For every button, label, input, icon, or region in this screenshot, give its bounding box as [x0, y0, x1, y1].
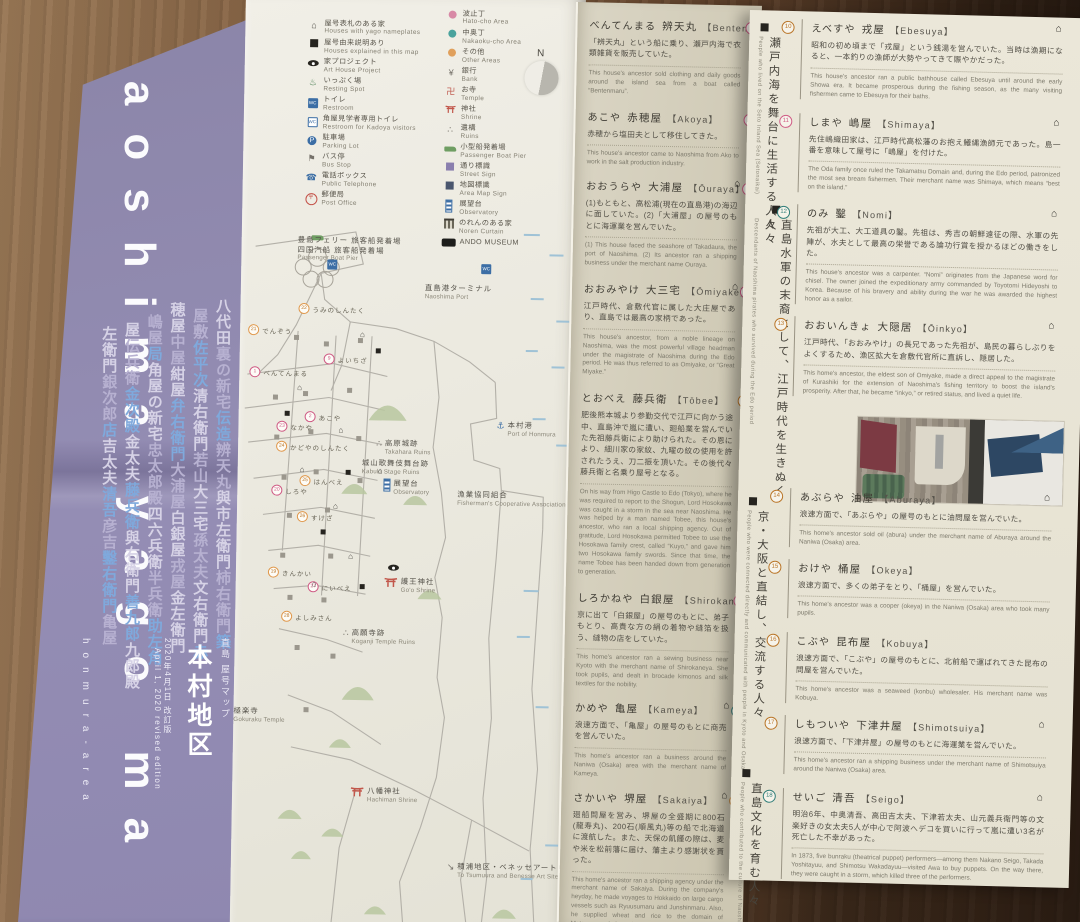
map-spot: 24かどやのしんたく: [276, 441, 350, 453]
map-label-en: Koganji Temple Ruins: [351, 638, 415, 647]
yago-name: 藤兵衛: [123, 482, 140, 530]
entry-text-jp: 「辨天丸」という船に乗り、瀬戸内海で衣類雑貨を販売していた。: [589, 36, 741, 62]
entry-kanji: 油屋: [851, 492, 875, 505]
map-label-port-honmura: ⚓本村港Port of Honmura: [496, 420, 556, 438]
yago-name-column: 左衛門銀次郎店吉太夫清吾彦吉鑿右衛門亀屋: [101, 326, 117, 768]
entry-kanji: 堺屋: [624, 793, 648, 805]
yago-name: 文右衛門: [191, 580, 208, 644]
cover-panel: naoshima yago ma honmura-area 八代田裏の新宅伝造辨…: [18, 10, 258, 922]
entry-kana: しもついや: [794, 719, 850, 731]
entry-romaji: 【Akoya】: [667, 114, 719, 125]
yago-name: 局: [146, 346, 163, 362]
map-label-jp: 極楽寺: [233, 706, 285, 717]
section-headings: People who lived on the Seto Inland Sea …: [750, 10, 1080, 18]
map-label-text: 護王神社Go'o Shrine: [401, 577, 436, 595]
yago-name: 佐平次: [191, 340, 208, 388]
map-spot: 22うみのしんたく: [298, 303, 365, 315]
entry-text-en: This home's ancestor was a seaweed (konb…: [795, 685, 1047, 709]
entry-kanji: 藤兵衛: [632, 394, 667, 407]
entry-kanji: 大隠居: [877, 321, 912, 334]
map-label-en: Kabuki Stage Ruins: [362, 468, 429, 477]
entry-text-jp: 浪速方面で、多くの弟子をとり、「桶屋」を営んでいた。: [798, 579, 1050, 597]
yago-name: 嶋屋: [146, 314, 163, 346]
entry-romaji: 【Sakaiya】: [652, 794, 713, 805]
map-spot: 20しろや: [271, 485, 308, 497]
cover-dates: 2020年4月1日 改訂版 April 1, 2020 revised edit…: [153, 638, 173, 908]
map-label-text: 漁業協同組合Fisherman's Cooperative Associatio…: [457, 490, 566, 509]
spot-label: あこや: [319, 412, 342, 422]
yago-name: 半兵衛: [146, 570, 163, 618]
yago-name: 忠太郎殿: [146, 442, 163, 506]
spot-label: うみのしんたく: [312, 304, 365, 315]
entry-number-badge: 17: [764, 716, 777, 729]
entry-divider: [589, 64, 741, 68]
spot-number-badge: 9: [324, 353, 335, 364]
entry-divider: [583, 328, 735, 332]
wood-table-background: naoshima yago ma honmura-area 八代田裏の新宅伝造辨…: [0, 0, 1080, 922]
entry-romaji: 【Aburaya】: [879, 494, 942, 506]
entry-oinkyo: おおいんきょ大隠居【Ōinkyo】⌂13江戸時代、「おおみやけ」の長兄であった先…: [793, 316, 1057, 402]
yago-name: 穂屋: [169, 302, 186, 334]
yago-name: 八代田: [214, 298, 231, 346]
entry-kana: おけや: [798, 563, 832, 575]
spot-number-badge: 23: [276, 421, 287, 432]
yago-name: 紺屋: [169, 366, 186, 398]
yago-name: 白銀屋: [169, 510, 186, 558]
house-icon: ⌂: [1044, 492, 1050, 503]
explained-icon: [285, 411, 290, 416]
spot-number-badge: 22: [298, 303, 309, 314]
entry-text-en: This home's ancestor sold oil (abura) un…: [799, 529, 1051, 553]
map-label-pier: 豊島フェリー 旅客船発着場四国汽船 旅客船発着場Passenger Boat P…: [297, 235, 401, 264]
yago-name: 伝兵衛: [123, 338, 140, 386]
map-label-observatory: 展望台Observatory: [383, 478, 429, 496]
spot-number-badge: 21: [248, 324, 259, 335]
ruins-icon: ∴: [376, 438, 382, 449]
entry-shirokaneya: しろかねや白銀屋【Shirokaneya】6京に出て「白銀屋」の屋号のもとに、弟…: [576, 589, 730, 692]
entry-number-badge: 10: [781, 21, 794, 34]
entry-kana: おおうらや: [586, 181, 642, 193]
entry-romaji: 【Shimaya】: [877, 119, 941, 131]
entry-kanji: 辨天丸: [662, 21, 697, 34]
entry-text-jp: 肥後熊本城より参勤交代で江戸に向かう途中、直島沖で嵐に遭い、廻船業を営んでいた先…: [580, 410, 733, 482]
map-label-en: Hachiman Shrine: [367, 796, 418, 805]
entry-kanji: 大浦屋: [648, 181, 683, 194]
entry-name: のみ鑿【Nomi】: [807, 205, 1059, 227]
yago-name: 四六兵衛: [146, 506, 163, 570]
house-icon: ⌂: [1051, 209, 1057, 220]
entry-text-jp: 先住嶋織田家は、江戸時代高松藩のお抱え鱶縄漁師元であった。島一番を意味して屋号に…: [808, 133, 1060, 162]
map-label-text: 展望台Observatory: [393, 479, 429, 497]
house-icon: ⌂: [734, 178, 740, 189]
entry-kanji: 鑿: [835, 208, 847, 220]
arrow-icon: ↘: [447, 862, 455, 873]
entry-text-en: (1) This house faced the seashore of Tak…: [584, 241, 737, 271]
section-heading-jp: 直島文化を育む人々: [744, 782, 764, 922]
entries-column-middle: べんてんまる辨天丸【Bentenmaru】1「辨天丸」という船に乗り、瀬戸内海で…: [568, 2, 742, 922]
yago-name: 銀次郎: [100, 374, 117, 422]
entry-romaji: 【Tōbee】: [672, 395, 724, 406]
entry-number-badge: 11: [779, 114, 792, 127]
spot-label: でんぞう: [262, 325, 292, 336]
entry-romaji: 【Seigo】: [861, 794, 911, 805]
entry-divider: [572, 871, 724, 875]
observatory-icon: [383, 478, 390, 491]
entry-kana: えべすや: [811, 24, 855, 36]
yago-name: 孫太夫: [191, 532, 208, 580]
map-spot: 23なかや: [276, 421, 313, 433]
map-label-text: 八幡神社Hachiman Shrine: [367, 786, 418, 804]
yago-name: 大浦屋: [169, 462, 186, 510]
map-label-jp: 展望台: [393, 479, 429, 489]
entry-shimaya: しまや嶋屋【Shimaya】⌂11先住嶋織田家は、江戸時代高松藩のお抱え鱶縄漁師…: [798, 113, 1062, 199]
map-spot: 9よいちざ: [324, 353, 368, 365]
spot-label: はんべえ: [313, 476, 343, 487]
entry-text-jp: 廻船問屋を営み、堺屋の全盛期に800石(龍寿丸)、200石(順風丸)等の船で北海…: [572, 809, 725, 869]
entry-name: おおみやけ大三宅【Ōmiyake】: [584, 280, 736, 299]
entry-romaji: 【Ōinkyo】: [917, 323, 973, 334]
art-house-eye-icon: [388, 565, 399, 571]
cover-subtitle-latin: honmura-area: [80, 638, 91, 922]
spot-number-badge: 1: [249, 366, 260, 377]
entry-romaji: 【Kameya】: [643, 705, 704, 716]
map-label-en: Takahara Ruins: [385, 448, 431, 457]
section-marker-icon: [742, 769, 750, 777]
entry-kobuya: こぶや昆布屋【Kobuya】16浪速方面で、「こぶや」の屋号のもとに、北前船で運…: [785, 632, 1049, 709]
yago-name: 吉太夫: [100, 438, 117, 486]
spot-number-badge: 24: [276, 441, 287, 452]
yago-name: 角屋の新宅: [146, 362, 163, 442]
entry-seigo: せいご清吾【Seigo】⌂18明治6年、中奥清吾、高田吉太夫、下津若太夫、山元義…: [781, 788, 1045, 885]
entry-text-jp: 明治6年、中奥清吾、高田吉太夫、下津若太夫、山元義兵衛門等の文楽好きの女太夫5人…: [792, 808, 1045, 848]
entry-kanji: 嶋屋: [849, 117, 873, 130]
entry-divider: [576, 648, 728, 652]
yago-name: 彦吉: [100, 518, 117, 550]
area-title: 本村地区: [180, 644, 216, 908]
map-label-gokuraku: 極楽寺Gokuraku Temple: [233, 706, 285, 724]
yago-name-column: 屋伝兵衛金次殿金太夫藤兵衛與右衛門善九郎九郎殿: [123, 322, 139, 768]
entry-aburaya: あぶらや油屋【Aburaya】⌂14浪速方面で、「あぶらや」の屋号のもとに油問屋…: [789, 488, 1052, 554]
yago-name: 辨天丸: [214, 442, 231, 490]
map-label-port-terminal: 直島港ターミナルNaoshima Port: [425, 283, 492, 302]
entry-kana: せいご: [793, 792, 827, 804]
map-label-text: 高願寺跡Koganji Temple Ruins: [351, 628, 415, 646]
entry-text-en: On his way from Higo Castle to Edo (Toky…: [578, 488, 732, 581]
entry-ouraya: おおうらや大浦屋【Ōuraya】⌂3(1)もともと、高松浦(現在の直島港)の海辺…: [584, 177, 738, 271]
section-heading-culture: People who contributed to the culture of…: [735, 782, 779, 922]
entry-text-en: This home's ancestor ran a business arou…: [574, 752, 727, 782]
house-icon: ⌂: [721, 790, 727, 801]
entry-sakaiya: さかいや堺屋【Sakaiya】⌂8廻船問屋を営み、堺屋の全盛期に800石(龍寿丸…: [570, 789, 725, 922]
map-label-en: Observatory: [393, 488, 429, 496]
entry-name: しまや嶋屋【Shimaya】: [809, 113, 1061, 135]
entry-name: かめや亀屋【Kameya】: [575, 699, 727, 718]
map-label-text: 極楽寺Gokuraku Temple: [233, 706, 285, 724]
entry-name: とおべえ藤兵衛【Tōbee】: [582, 390, 734, 409]
entry-kana: しろかねや: [577, 593, 633, 605]
yago-name: 戎屋: [169, 558, 186, 590]
map-label-jp: 八幡神社: [367, 786, 418, 797]
entry-kana: あこや: [587, 112, 621, 124]
entry-romaji: 【Okeya】: [866, 565, 919, 576]
entry-text-jp: (1)もともと、高松浦(現在の直島港)の海辺に面していた。(2)「大浦屋」の屋号…: [585, 197, 738, 234]
house-icon: ⌂: [723, 700, 729, 711]
spot-number-badge: 20: [271, 485, 282, 496]
torii-icon: [384, 576, 398, 587]
house-icon: ⌂: [1053, 117, 1059, 128]
section-marker-icon: [749, 497, 757, 505]
entry-text-jp: 浪速方面で、「下津井屋」の屋号のもとに海運業を営んでいた。: [794, 735, 1046, 753]
yago-name: 金次殿: [123, 386, 140, 434]
map-label-en: Naoshima Port: [425, 293, 492, 302]
entry-text-jp: 先祖が大工、大工道具の鑿。先祖は、秀吉の朝鮮遠征の際、水軍の先陣が、水夫として最…: [806, 225, 1059, 265]
spot-label: きんかい: [282, 567, 312, 578]
entry-kanji: 亀屋: [615, 703, 639, 715]
entry-text-en: This home's ancestor was a cooper (okeya…: [797, 601, 1049, 625]
map-series-title: 直島 屋号マップ: [220, 638, 230, 720]
yago-name: 善九郎: [123, 594, 140, 642]
entry-omiyake: おおみやけ大三宅【Ōmiyake】⌂4江戸時代、倉敷代官に属した大庄屋であり、直…: [582, 280, 736, 381]
entry-romaji: 【Ebesuya】: [890, 25, 954, 37]
entry-number-badge: 14: [770, 489, 783, 502]
entry-name: おけや桶屋【Okeya】: [798, 559, 1050, 581]
entry-kana: しまや: [809, 117, 843, 129]
entry-text-en: This home's ancestor ran a sewing busine…: [576, 653, 729, 692]
entries-panel-right: People who lived on the Seto Inland Sea …: [729, 10, 1080, 888]
yago-name: 亀屋: [100, 614, 117, 646]
yago-name: 金太夫: [123, 434, 140, 482]
spot-label: かどやのしんたく: [290, 441, 350, 452]
entry-divider: [587, 144, 739, 148]
spot-label: よしみさん: [295, 611, 333, 622]
revision-date-jp: 2020年4月1日 改訂版: [162, 638, 173, 908]
spot-label: にいべえ: [322, 582, 352, 593]
ruins-icon: ∴: [343, 628, 349, 639]
map-label-text: 高原城跡Takahara Ruins: [385, 438, 431, 456]
entry-name: おおいんきょ大隠居【Ōinkyo】: [804, 317, 1056, 339]
entry-kanji: 下津井屋: [856, 720, 903, 733]
house-icon: ⌂: [1055, 23, 1061, 34]
entry-nomi: のみ鑿【Nomi】⌂12先祖が大工、大工道具の鑿。先祖は、秀吉の朝鮮遠征の際、水…: [795, 204, 1059, 310]
entry-kana: とおべえ: [582, 394, 627, 406]
entry-shimotsuiya: しもついや下津井屋【Shimotsuiya】⌂17浪速方面で、「下津井屋」の屋号…: [783, 715, 1046, 781]
section-marker-icon: [760, 23, 768, 31]
map-spot: 28よしみさん: [281, 611, 333, 623]
yago-name: 店: [100, 422, 117, 438]
map-label-hachiman: 八幡神社Hachiman Shrine: [350, 786, 418, 805]
entry-text-en: In 1873, five bunraku (theatrical puppet…: [791, 853, 1044, 886]
entry-romaji: 【Shimotsuiya】: [908, 722, 991, 734]
explained-icon: [321, 529, 326, 534]
map-restroom-icon-2: WC: [481, 264, 491, 274]
map-label-text: 本村港Port of Honmura: [507, 421, 556, 439]
entry-text-en: This house's ancestor came to Naoshima f…: [587, 149, 739, 170]
entry-kana: こぶや: [796, 637, 830, 649]
entry-bentenmaru: べんてんまる辨天丸【Bentenmaru】1「辨天丸」という船に乗り、瀬戸内海で…: [588, 16, 742, 99]
section-heading-en: People who contributed to the culture of…: [735, 782, 745, 922]
entry-kanji: 昆布屋: [836, 637, 871, 650]
yago-name: 裏の新宅: [214, 346, 231, 410]
yago-name: 伝造: [214, 410, 231, 442]
entry-tobee: とおべえ藤兵衛【Tōbee】5肥後熊本城より参勤交代で江戸に向かう途中、直島沖で…: [578, 390, 734, 581]
entry-kanji: 戎屋: [862, 24, 886, 37]
entry-divider: [574, 747, 726, 751]
entry-text-jp: 江戸時代、倉敷代官に属した大庄屋であり、直島では最高の家柄であった。: [583, 300, 735, 326]
entry-kanji: 清吾: [832, 792, 856, 805]
cover-title-jp: 直島 屋号マップ 本村地区: [180, 638, 234, 908]
yago-name: 屋: [123, 322, 140, 338]
entry-text-en: This home's ancestor ran a shipping busi…: [793, 757, 1045, 781]
entry-text-jp: 赤穂から塩田夫として移住してきた。: [587, 128, 739, 143]
yago-name: 與右衛門: [123, 530, 140, 594]
house-icon: ⌂: [378, 466, 383, 475]
map-label-jp: 護王神社: [401, 577, 436, 587]
house-icon: ⌂: [297, 383, 302, 392]
entry-romaji: 【Kobuya】: [876, 639, 934, 650]
house-icon: ⌂: [1038, 719, 1044, 730]
entry-romaji: 【Nomi】: [852, 210, 898, 221]
map-buildings: [267, 335, 365, 714]
house-icon: ⌂: [1037, 792, 1043, 803]
entry-text-jp: 昭和の初め頃まで「戎屋」という銭湯を営んでいた。当時は漁期になると、一本釣りの漁…: [811, 40, 1063, 69]
entry-name: しろかねや白銀屋【Shirokaneya】: [577, 589, 729, 608]
spot-label: すけざ: [311, 512, 334, 522]
entry-text-en: This house's ancestor ran a public bathh…: [810, 72, 1063, 105]
entry-kana: かめや: [575, 703, 609, 715]
entry-text-en: This house's ancestor, from a noble line…: [582, 333, 735, 381]
map-label-text: 豊島フェリー 旅客船発着場四国汽船 旅客船発着場Passenger Boat P…: [297, 235, 401, 264]
entry-name: あぶらや油屋【Aburaya】: [800, 488, 1052, 510]
map-label-en: Port of Honmura: [507, 430, 556, 439]
map-spot: 1べんてんまる: [249, 366, 308, 378]
yago-name: 鑿右衛門: [100, 550, 117, 614]
house-icon: ⌂: [300, 465, 305, 474]
explained-icon: [376, 348, 381, 353]
entry-text-en: The Oda family once ruled the Takamatsu …: [808, 166, 1061, 199]
entry-kana: あぶらや: [800, 492, 845, 504]
map-label-kabuki-ruins: 城山歌舞伎舞台跡Kabuki Stage Ruins: [362, 458, 429, 477]
entry-name: こぶや昆布屋【Kobuya】: [796, 633, 1048, 655]
entry-name: えべすや戎屋【Ebesuya】: [811, 20, 1063, 42]
spot-label: よいちざ: [338, 354, 368, 365]
entry-text-en: This home's ancestor, the eldest son of …: [803, 369, 1056, 402]
spot-label: しろや: [285, 485, 308, 495]
house-icon: ⌂: [338, 426, 343, 435]
map-label-takahara-ruins: ∴高原城跡Takahara Ruins: [376, 438, 431, 456]
entry-kana: さかいや: [573, 793, 618, 805]
section-heading-jp: 直島水軍の末裔として、江戸時代を生きぬく人々: [755, 218, 794, 514]
entry-text-jp: 浪速方面で、「あぶらや」の屋号のもとに油問屋を営んでいた。: [800, 508, 1052, 526]
entry-text-jp: 浪速方面で、「こぶや」の屋号のもとに、北前船で運ばれてきた昆布の問屋を営んでいた…: [796, 653, 1048, 682]
entry-name: しもついや下津井屋【Shimotsuiya】: [794, 715, 1046, 737]
map-label-goo-shrine: 護王神社Go'o Shrine: [384, 576, 436, 594]
entry-kana: べんてんまる: [589, 20, 656, 32]
map-label-fishermans: 漁業協同組合Fisherman's Cooperative Associatio…: [457, 490, 566, 509]
entry-text-en: This house's ancestor sold clothing and …: [588, 69, 741, 99]
yago-name: 若山: [191, 452, 208, 484]
house-icon: ⌂: [348, 552, 353, 561]
house-icon: ⌂: [732, 281, 738, 292]
entry-kana: おおいんきょ: [804, 321, 871, 334]
entry-name: せいご清吾【Seigo】: [793, 788, 1045, 810]
entries-column-right: えべすや戎屋【Ebesuya】⌂10昭和の初め頃まで「戎屋」という銭湯を営んでい…: [781, 19, 1064, 885]
entry-akoya: あこや赤穂屋【Akoya】2赤穂から塩田夫として移住してきた。This hous…: [587, 108, 740, 170]
house-icon: ⌂: [1048, 320, 1054, 331]
yago-name: 清吾: [100, 486, 117, 518]
map-label-jp: 高願寺跡: [352, 628, 416, 639]
spot-number-badge: 19: [268, 566, 279, 577]
entry-divider: [585, 236, 737, 240]
house-icon: ⌂: [360, 330, 365, 339]
map-label-text: 城山歌舞伎舞台跡Kabuki Stage Ruins: [362, 458, 429, 477]
section-heading-suigun: Descendants of Naoshima pirates who surv…: [746, 218, 793, 514]
entry-divider: [580, 483, 732, 487]
entry-name: さかいや堺屋【Sakaiya】: [573, 789, 725, 808]
map-panel: ⌂屋号表札のある家Houses with yago nameplates屋号由来…: [230, 0, 586, 922]
entry-text-en: This house's ancestor was a carpenter. “…: [805, 269, 1058, 311]
yago-name: 柿右衛門: [214, 570, 231, 634]
map-spot: 19きんかい: [268, 566, 312, 578]
yago-name: 大三宅: [191, 484, 208, 532]
entry-okeya: おけや桶屋【Okeya】15浪速方面で、多くの弟子をとり、「桶屋」を営んでいた。…: [787, 559, 1050, 625]
entry-ebesuya: えべすや戎屋【Ebesuya】⌂10昭和の初め頃まで「戎屋」という銭湯を営んでい…: [800, 19, 1064, 105]
entry-text-en: This home's ancestor ran a shipping agen…: [570, 876, 723, 922]
spot-label: べんてんまる: [263, 367, 308, 378]
entry-name: おおうらや大浦屋【Ōuraya】: [586, 177, 738, 196]
entry-kanji: 赤穂屋: [627, 112, 662, 125]
yago-name: 弁右衛門: [169, 398, 186, 462]
cover-title-block: 直島 屋号マップ 本村地区 2020年4月1日 改訂版 April 1, 202…: [153, 638, 234, 908]
entry-name: べんてんまる辨天丸【Bentenmaru】: [589, 16, 741, 35]
entry-text-jp: 浪速方面で、「亀屋」の屋号のもとに商売を営んでいた。: [575, 719, 727, 745]
spot-label: なかや: [290, 421, 313, 431]
entry-text-jp: 江戸時代、「おおみやけ」の長兄であった先祖が、島民の暮らしぶりをよくするため、漁…: [803, 337, 1055, 366]
torii-icon: [350, 786, 364, 797]
yago-name: 九郎殿: [123, 642, 140, 690]
entry-name: あこや赤穂屋【Akoya】: [587, 108, 739, 127]
yago-name: 清右衛門: [191, 388, 208, 452]
spot-number-badge: 28: [281, 611, 292, 622]
map-spot: 21でんぞう: [248, 324, 292, 336]
house-icon: ⌂: [312, 579, 317, 588]
map-label-jp: 高原城跡: [385, 438, 431, 448]
yago-name: 屋敷: [191, 308, 208, 340]
map-label-en: Go'o Shrine: [401, 586, 436, 594]
anchor-icon: ⚓: [496, 420, 504, 431]
yago-name: 與市左衛門: [214, 490, 231, 570]
explained-icon: [360, 584, 365, 589]
map-spot: 26すけざ: [297, 511, 334, 523]
map-label-jp: 本村港: [508, 421, 557, 431]
entry-kanji: 大三宅: [646, 284, 681, 297]
map-label-en: Gokuraku Temple: [233, 716, 285, 725]
entry-kana: おおみやけ: [584, 284, 640, 296]
house-icon: ⌂: [333, 502, 338, 511]
entry-text-jp: 京に出て「白銀屋」の屋号のもとに、弟子もとり、高貴な方の絹の着物や縫箔を扱う、縫…: [577, 609, 730, 646]
entry-kanji: 桶屋: [838, 563, 862, 576]
explained-icon: [346, 470, 351, 475]
entry-kana: のみ: [807, 209, 830, 221]
map-label-koganji: ∴高願寺跡Koganji Temple Ruins: [343, 628, 416, 647]
revision-date-en: April 1, 2020 revised edition: [153, 648, 162, 908]
yago-name: 左衛門: [100, 326, 117, 374]
yago-name: 中屋: [169, 334, 186, 366]
entry-kameya: かめや亀屋【Kameya】⌂7浪速方面で、「亀屋」の屋号のもとに商売を営んでいた…: [574, 699, 728, 782]
spot-number-badge: 26: [297, 511, 308, 522]
entry-kanji: 白銀屋: [639, 593, 674, 606]
map-label-text: 直島港ターミナルNaoshima Port: [425, 283, 492, 302]
